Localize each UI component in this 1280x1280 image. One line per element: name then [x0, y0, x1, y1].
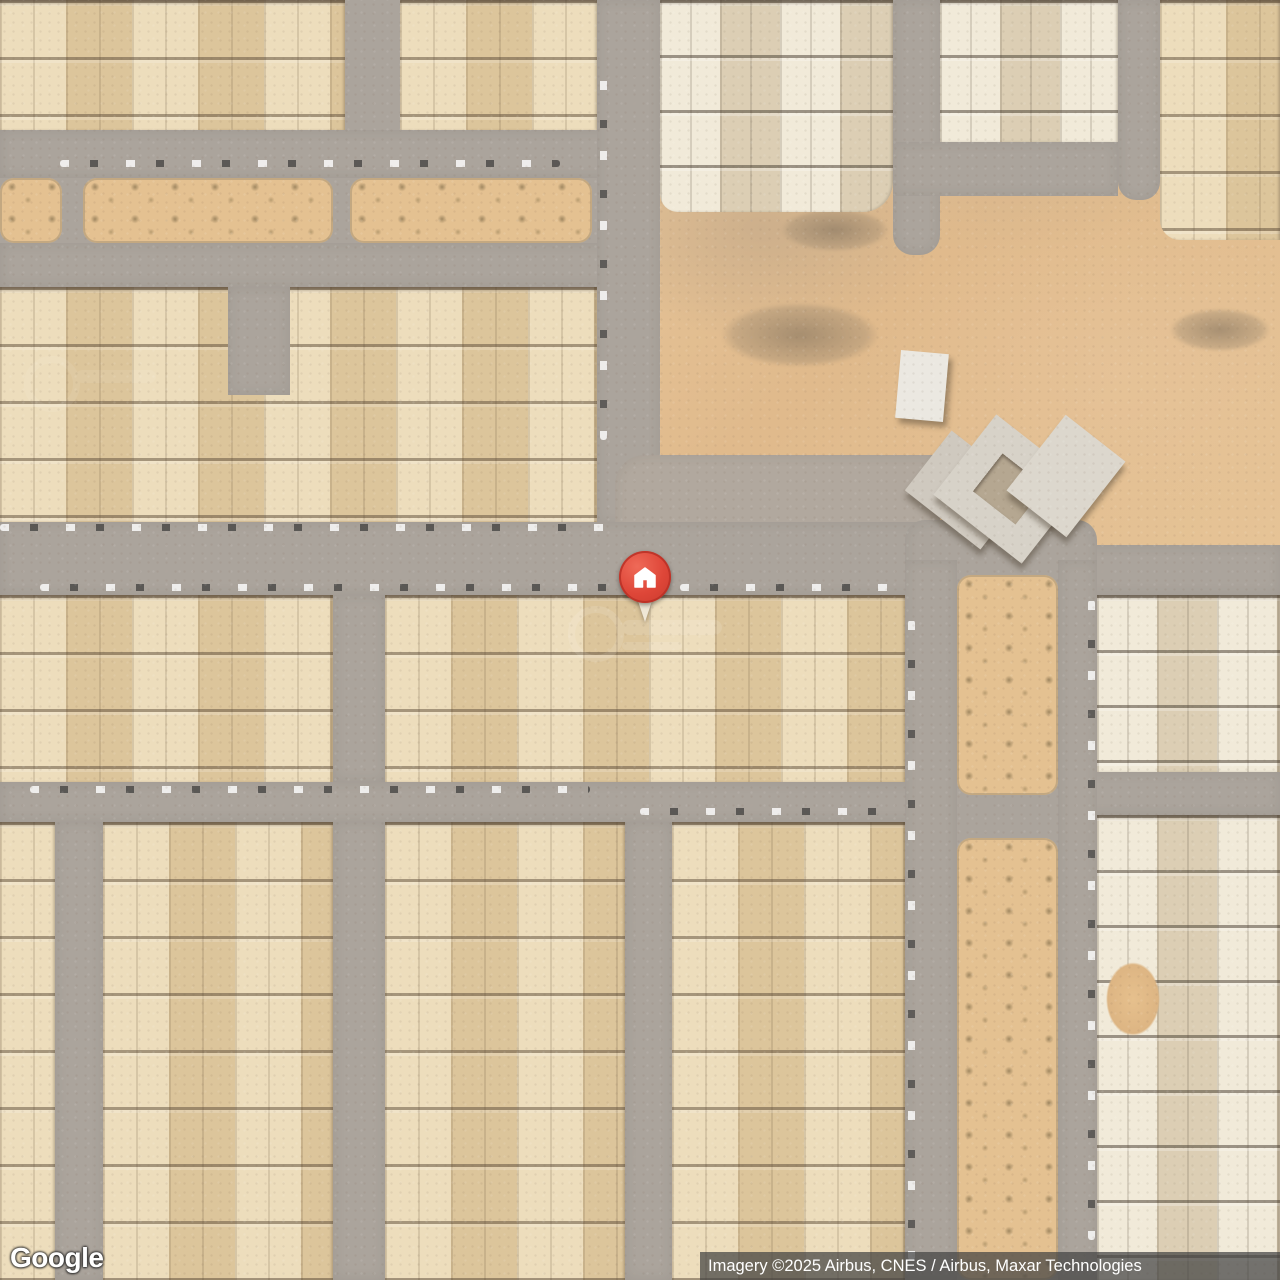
- property-marker[interactable]: [619, 551, 671, 623]
- satellite-map[interactable]: Google Imagery ©2025 Airbus, CNES / Airb…: [0, 0, 1280, 1280]
- attribution-text: Imagery ©2025 Airbus, CNES / Airbus, Max…: [708, 1257, 1142, 1276]
- housing-block: [660, 0, 893, 212]
- top-avenue-median: [83, 178, 333, 243]
- attribution-bar: Imagery ©2025 Airbus, CNES / Airbus, Max…: [700, 1252, 1280, 1280]
- street-vertical: [333, 822, 385, 1280]
- housing-block: [0, 0, 345, 130]
- street-vertical: [333, 595, 385, 782]
- housing-block: [0, 595, 333, 782]
- parked-cars: [0, 524, 610, 531]
- boulevard-median: [957, 838, 1058, 1280]
- housing-block: [1160, 0, 1280, 240]
- parked-cars: [30, 786, 590, 793]
- parking-lot: [228, 287, 290, 395]
- road-top-avenue-north: [0, 130, 660, 178]
- desert-rubble: [690, 290, 910, 380]
- road-topright-vertical: [893, 0, 940, 255]
- housing-block: [672, 822, 905, 1280]
- parked-cars: [1088, 600, 1095, 1240]
- road-topright-horizontal: [893, 142, 1118, 196]
- image-watermark: [20, 350, 170, 410]
- parked-cars: [60, 160, 560, 167]
- vacant-lot: [1097, 950, 1169, 1048]
- parked-cars: [680, 584, 900, 591]
- street-vertical: [55, 822, 103, 1280]
- boulevard-median: [957, 575, 1058, 795]
- parked-cars: [640, 808, 900, 815]
- top-avenue-median: [350, 178, 592, 243]
- top-avenue-median: [0, 178, 62, 243]
- housing-block: [103, 822, 333, 1280]
- road-top-avenue-south: [0, 243, 660, 287]
- construction-building-small: [895, 350, 949, 422]
- street-vertical: [625, 822, 672, 1280]
- parked-cars: [40, 584, 610, 591]
- parked-cars: [908, 620, 915, 1260]
- housing-block: [385, 822, 625, 1280]
- parked-cars: [600, 60, 607, 440]
- house-icon: [632, 565, 658, 589]
- road-topright-vertical-2: [1118, 0, 1160, 200]
- google-logo[interactable]: Google: [10, 1242, 103, 1274]
- housing-block: [0, 822, 55, 1280]
- housing-block: [400, 0, 597, 130]
- marker-circle: [619, 551, 671, 603]
- desert-rubble: [1150, 300, 1280, 360]
- housing-block: [1097, 595, 1280, 772]
- housing-block: [940, 0, 1118, 142]
